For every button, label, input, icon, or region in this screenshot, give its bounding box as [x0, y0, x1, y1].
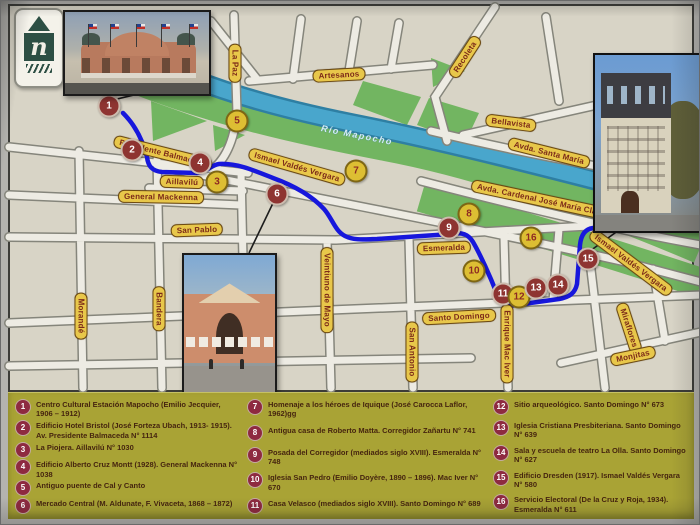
legend-item: 6Mercado Central (M. Aldunate, F. Vivace… [15, 498, 239, 514]
logo-hatch-icon [26, 64, 52, 73]
map-marker-2: 2 [121, 139, 144, 162]
legend: 1Centro Cultural Estación Mapocho (Emili… [8, 392, 694, 519]
map-marker-5: 5 [226, 110, 249, 133]
street-foreground [595, 215, 700, 231]
market-awnings [186, 337, 273, 347]
legend-item-text: Iglesia Cristiana Presbiteriana. Santo D… [514, 420, 690, 440]
legend-item-number: 13 [493, 420, 509, 436]
legend-item-number: 9 [247, 447, 263, 463]
legend-item-number: 15 [493, 470, 509, 486]
logo-letter: n [24, 33, 54, 61]
chile-flag-icon [162, 24, 170, 29]
corner-building [601, 73, 670, 214]
legend-item-number: 10 [247, 472, 263, 488]
map-marker-6: 6 [266, 183, 289, 206]
legend-item-number: 3 [15, 442, 31, 458]
chile-flag-icon [137, 24, 145, 29]
station-canopy [81, 73, 196, 78]
pedestrian [209, 359, 213, 369]
roof-windows [607, 86, 665, 104]
map-publisher-logo: n [14, 8, 64, 88]
station-dome [177, 33, 194, 44]
legend-item-text: Centro Cultural Estación Mapocho (Emilio… [36, 399, 239, 419]
map-marker-14: 14 [547, 274, 570, 297]
legend-item: 7Homenaje a los héroes de Iquique (José … [247, 399, 485, 419]
map-marker-16: 16 [520, 227, 543, 250]
flag-pole [88, 24, 89, 47]
legend-item: 4Edificio Alberto Cruz Montt (1928). Gen… [15, 459, 239, 479]
legend-item-number: 5 [15, 480, 31, 496]
facade-windows [607, 126, 665, 191]
legend-item: 11Casa Velasco (mediados siglo XVIII). S… [247, 498, 485, 514]
entrance-arch [621, 191, 639, 214]
market-pediment [199, 283, 261, 302]
market-building [184, 294, 275, 364]
chile-flag-icon [89, 24, 97, 29]
inset-photo-edificio-dresden [593, 53, 700, 233]
legend-item-text: La Piojera. Aillavilú N° 1030 [36, 442, 134, 452]
legend-item-text: Posada del Corregidor (mediados siglo XV… [268, 447, 485, 467]
legend-item-number: 6 [15, 498, 31, 514]
legend-item: 1Centro Cultural Estación Mapocho (Emili… [15, 399, 239, 419]
legend-column-1: 1Centro Cultural Estación Mapocho (Emili… [15, 399, 239, 514]
flag-pole [110, 24, 111, 47]
station-gable [105, 32, 168, 57]
legend-item-number: 16 [493, 494, 509, 510]
map-marker-13: 13 [525, 277, 548, 300]
legend-item-number: 1 [15, 399, 31, 415]
map-marker-15: 15 [577, 248, 600, 271]
chile-flag-icon [111, 24, 119, 29]
legend-item-number: 12 [493, 399, 509, 415]
legend-column-3: 12Sitio arqueológico. Santo Domingo N° 6… [493, 399, 690, 514]
legend-item: 14Sala y escuela de teatro La Olla. Sant… [493, 445, 690, 465]
plaza-ground [184, 366, 275, 394]
legend-item: 10Iglesia San Pedro (Emilio Doyère, 1890… [247, 472, 485, 492]
legend-item-number: 8 [247, 425, 263, 441]
legend-item-text: Antiguo puente de Cal y Canto [36, 480, 145, 490]
photographed-tour-map: Presidente BalmacedaGeneral MackennaAill… [0, 0, 700, 525]
legend-item: 12Sitio arqueológico. Santo Domingo N° 6… [493, 399, 690, 415]
map-marker-8: 8 [458, 203, 481, 226]
legend-item: 2Edificio Hotel Bristol (José Forteza Ub… [15, 420, 239, 440]
flag-pole [189, 24, 190, 47]
legend-item-text: Mercado Central (M. Aldunate, F. Vivacet… [36, 498, 232, 508]
legend-item-text: Edificio Alberto Cruz Montt (1928). Gene… [36, 459, 239, 479]
chile-flag-icon [190, 24, 198, 29]
legend-item-text: Edificio Hotel Bristol (José Forteza Uba… [36, 420, 239, 440]
street-foreground [65, 83, 209, 94]
map-marker-9: 9 [438, 217, 461, 240]
station-dome [82, 33, 99, 44]
legend-item-number: 14 [493, 445, 509, 461]
station-arches [82, 58, 194, 73]
inset-photo-estacion-mapocho [63, 10, 211, 96]
legend-item-text: Antigua casa de Roberto Matta. Corregido… [268, 425, 476, 435]
map-marker-7: 7 [345, 160, 368, 183]
legend-column-2: 7Homenaje a los héroes de Iquique (José … [247, 399, 485, 514]
logo-triangle-icon [28, 16, 50, 31]
map-marker-4: 4 [189, 152, 212, 175]
legend-item-text: Sala y escuela de teatro La Olla. Santo … [514, 445, 690, 465]
legend-item-text: Casa Velasco (mediados siglo XVIII). San… [268, 498, 481, 508]
market-entrance-arch [216, 313, 243, 353]
map-marker-10: 10 [463, 260, 486, 283]
legend-item: 5Antiguo puente de Cal y Canto [15, 480, 239, 496]
pedestrian [240, 359, 244, 369]
map-marker-1: 1 [98, 95, 121, 118]
legend-item: 16Servicio Electoral (De la Cruz y Roja,… [493, 494, 690, 514]
legend-item-text: Homenaje a los héroes de Iquique (José C… [268, 399, 485, 419]
flag-pole [136, 24, 137, 47]
legend-item-text: Sitio arqueológico. Santo Domingo N° 673 [514, 399, 664, 409]
legend-item: 15Edificio Dresden (1917). Ismael Valdés… [493, 470, 690, 490]
legend-item-text: Servicio Electoral (De la Cruz y Roja, 1… [514, 494, 690, 514]
legend-item-text: Edificio Dresden (1917). Ismael Valdés V… [514, 470, 690, 490]
legend-item: 3La Piojera. Aillavilú N° 1030 [15, 442, 239, 458]
legend-item-number: 4 [15, 459, 31, 475]
legend-item: 13Iglesia Cristiana Presbiteriana. Santo… [493, 420, 690, 440]
legend-item: 8Antigua casa de Roberto Matta. Corregid… [247, 425, 485, 441]
flag-pole [161, 24, 162, 47]
legend-item: 9Posada del Corregidor (mediados siglo X… [247, 447, 485, 467]
inset-photo-mercado-central [182, 253, 277, 396]
map-marker-3: 3 [206, 171, 229, 194]
legend-item-number: 11 [247, 498, 263, 514]
legend-item-text: Iglesia San Pedro (Emilio Doyère, 1890 –… [268, 472, 485, 492]
mansard-roof [601, 73, 670, 118]
legend-item-number: 2 [15, 420, 31, 436]
legend-item-number: 7 [247, 399, 263, 415]
